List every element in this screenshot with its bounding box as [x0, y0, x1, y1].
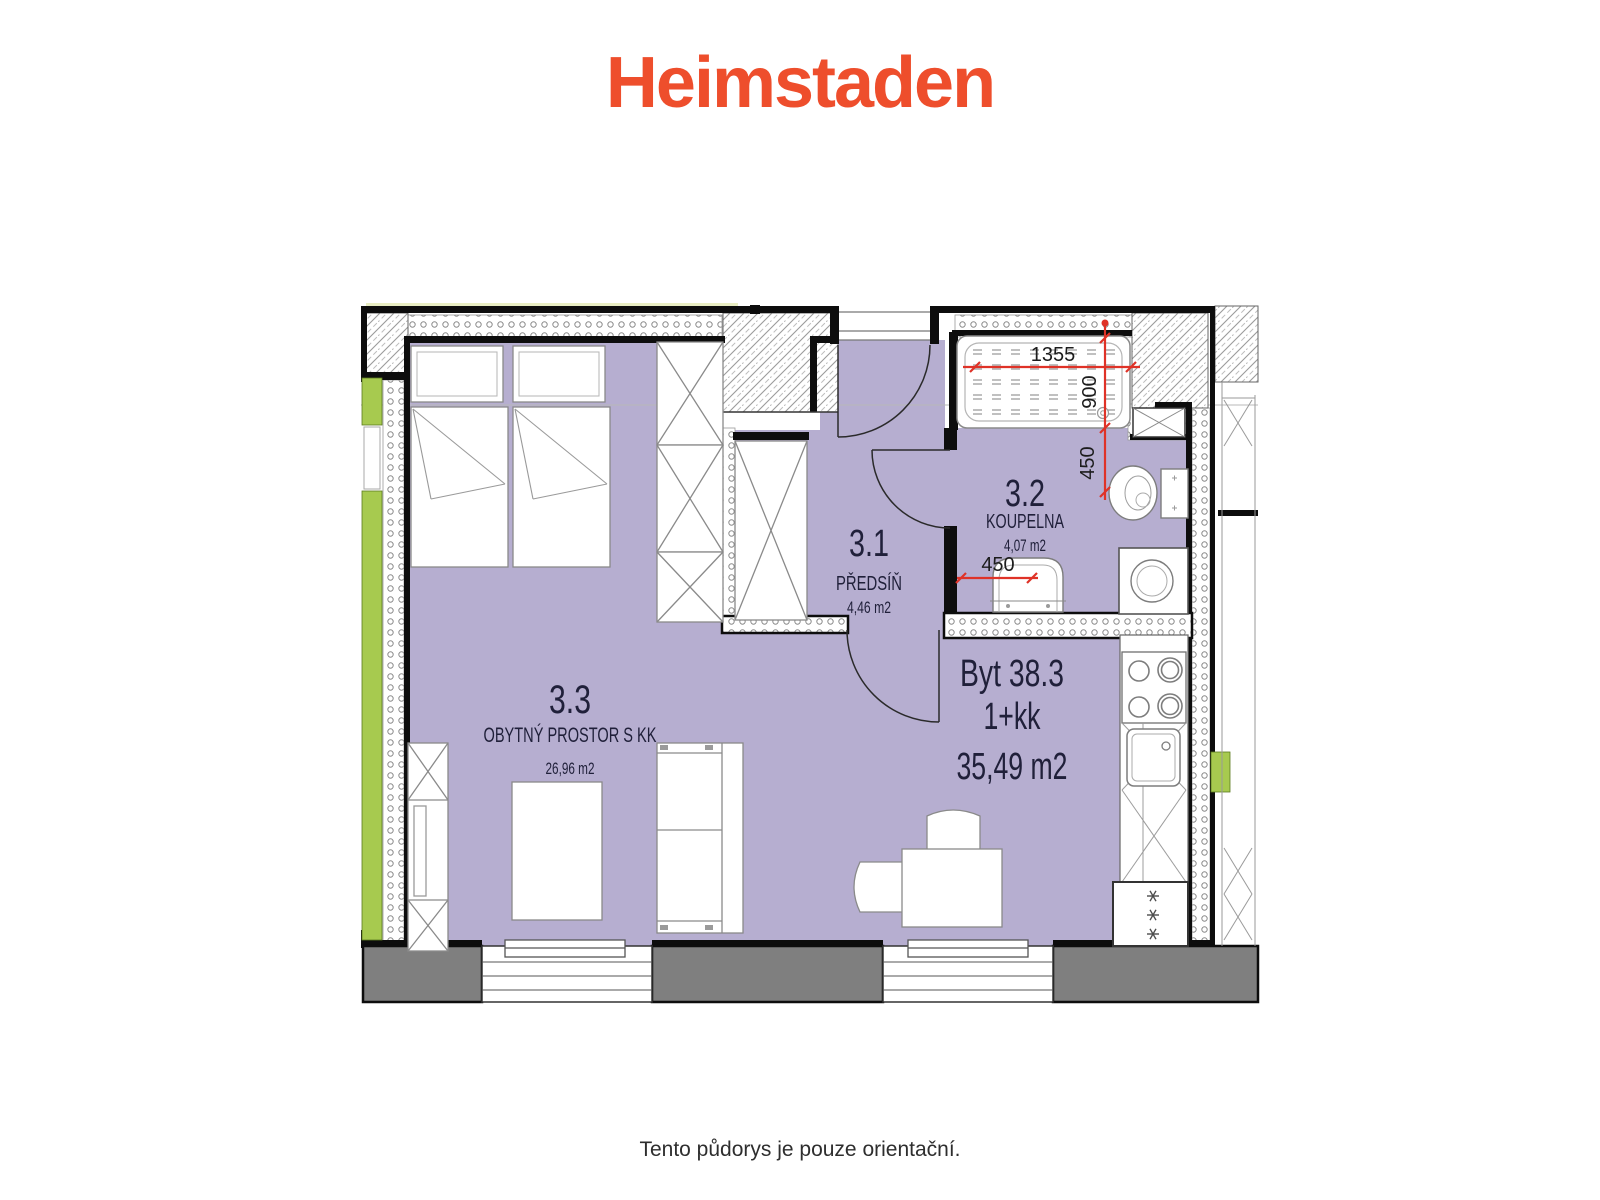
disclaimer-note: Tento půdorys je pouze orientační.: [0, 1138, 1600, 1162]
svg-text:3.2: 3.2: [1005, 473, 1045, 515]
dim-450-toilet: 450: [1077, 446, 1099, 479]
dim-900: 900: [1079, 375, 1101, 408]
hall-wardrobe-icon: [735, 441, 807, 620]
svg-text:Byt 38.3: Byt 38.3: [960, 653, 1064, 695]
svg-text:PŘEDSÍŇ: PŘEDSÍŇ: [836, 572, 902, 595]
sofa-icon: [657, 743, 743, 933]
page: Heimstaden: [0, 0, 1600, 1200]
svg-text:26,96 m2: 26,96 m2: [546, 759, 595, 778]
table-icon: [512, 782, 602, 920]
svg-text:3.1: 3.1: [849, 523, 889, 565]
left-window-strip-2: [362, 491, 382, 940]
right-window-strip: [1211, 752, 1230, 792]
adjacent-unit: [1222, 382, 1255, 946]
toilet-icon: [1109, 466, 1188, 520]
washing-machine-icon: [1119, 548, 1188, 614]
sink-icon: [1127, 729, 1180, 786]
dim-450-basin: 450: [981, 554, 1014, 576]
tv-stand-icon: [408, 743, 448, 951]
svg-text:3.3: 3.3: [549, 678, 591, 722]
entrance-threshold: [839, 312, 930, 340]
kitchen-counter: [1113, 635, 1188, 946]
svg-text:4,07 m2: 4,07 m2: [1004, 536, 1046, 555]
shaft-icon: [1133, 408, 1185, 437]
left-window-strip-1: [362, 378, 382, 425]
svg-text:4,46 m2: 4,46 m2: [847, 598, 891, 617]
window-frame-gap: [364, 427, 380, 489]
svg-text:1+kk: 1+kk: [984, 696, 1042, 738]
bath-bottom-wall: [944, 613, 1192, 638]
svg-text:KOUPELNA: KOUPELNA: [986, 511, 1064, 533]
bath-door-gap-floor: [945, 448, 957, 528]
floor-plan: 1355 900 450 450 3.1 PŘEDSÍŇ 4,46 m2 3.2…: [0, 0, 1600, 1200]
svg-text:35,49 m2: 35,49 m2: [957, 746, 1068, 788]
fridge-icon: [1113, 882, 1188, 946]
wardrobe-icon: [657, 342, 723, 622]
dim-1355: 1355: [1031, 344, 1076, 366]
svg-text:OBYTNÝ PROSTOR S KK: OBYTNÝ PROSTOR S KK: [484, 724, 657, 747]
